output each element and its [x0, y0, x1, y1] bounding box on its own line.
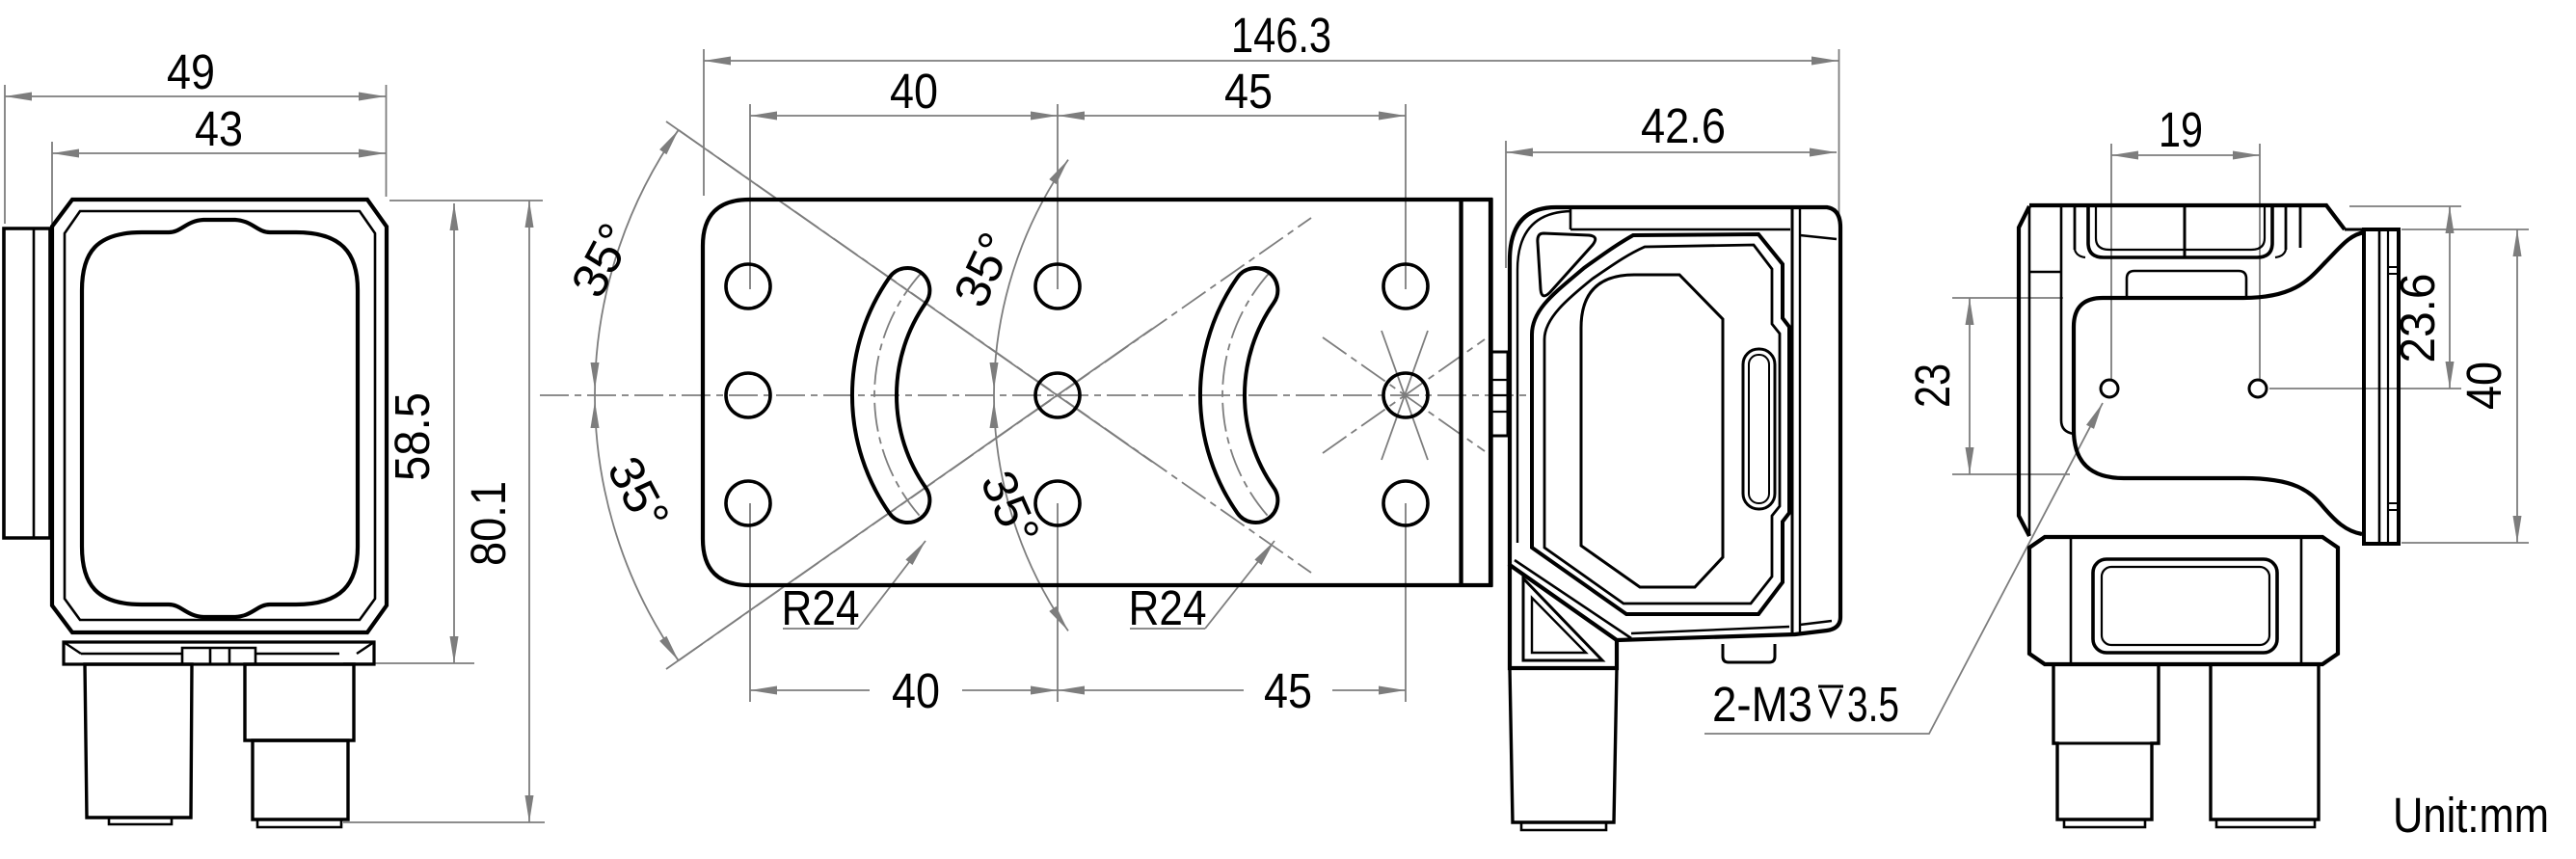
svg-text:146.3: 146.3	[1231, 8, 1331, 63]
svg-text:58.5: 58.5	[385, 392, 440, 481]
svg-text:43: 43	[195, 101, 243, 156]
svg-text:2-M3: 2-M3	[1712, 677, 1812, 732]
svg-text:42.6: 42.6	[1641, 98, 1726, 153]
svg-text:R24: R24	[782, 580, 860, 635]
svg-text:40: 40	[892, 663, 940, 718]
svg-text:45: 45	[1224, 64, 1273, 119]
svg-text:Unit:mm: Unit:mm	[2393, 788, 2549, 843]
svg-text:R24: R24	[1129, 580, 1207, 635]
svg-text:40: 40	[2456, 362, 2511, 410]
svg-text:45: 45	[1264, 663, 1312, 718]
svg-text:19: 19	[2159, 102, 2203, 157]
svg-text:23: 23	[1905, 363, 1960, 408]
svg-text:3.5: 3.5	[1847, 677, 1899, 732]
svg-text:40: 40	[890, 64, 938, 119]
svg-text:49: 49	[167, 44, 215, 99]
svg-text:80.1: 80.1	[461, 481, 516, 566]
